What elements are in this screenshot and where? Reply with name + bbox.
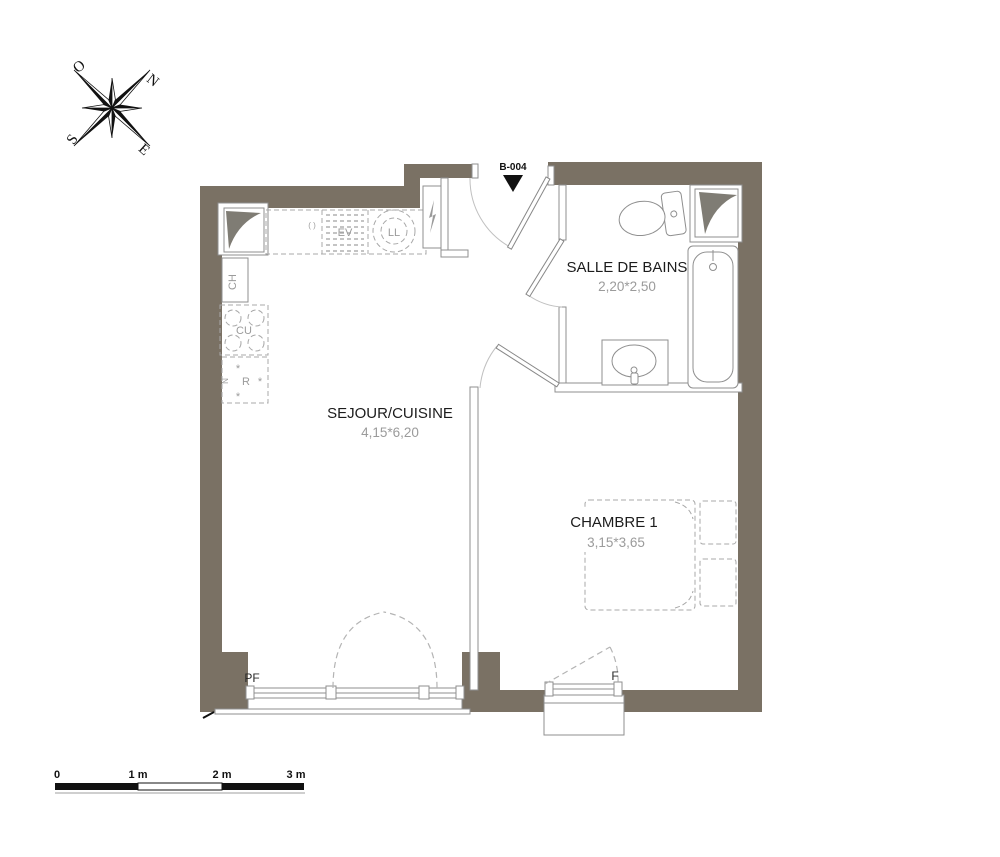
f-window-sill-box — [544, 695, 624, 735]
fridge-snowflake-icon: * — [236, 391, 241, 403]
pf-left-leaf-swing — [333, 612, 384, 688]
wall-segment — [200, 186, 222, 712]
bathroom-dimensions: 2,20*2,50 — [598, 279, 656, 294]
pf-window-sill — [248, 698, 462, 710]
entrance-door-swing-arc — [470, 178, 510, 247]
scale-tick-2m: 2 m — [213, 769, 232, 781]
washbasin-tap — [631, 367, 637, 373]
bathroom-name: SALLE DE BAINS — [567, 259, 688, 276]
compass-east-label: E — [135, 141, 153, 159]
pillow-outline — [700, 559, 736, 606]
bedroom-door-swing-arc — [480, 346, 497, 388]
burner-icon — [248, 335, 264, 351]
scale-bar: 0 1 m 2 m 3 m — [54, 769, 306, 794]
cooktop-label: CU — [236, 325, 252, 337]
wall-segment — [622, 690, 762, 712]
fridge-note-label: N — [221, 378, 230, 384]
floor-plan-page: O N S E — [0, 0, 1000, 857]
partition-living-bedroom — [470, 387, 478, 690]
burner-icon — [225, 335, 241, 351]
plan-corner-tick — [203, 712, 214, 718]
scale-tick-1m: 1 m — [129, 769, 148, 781]
windows — [215, 612, 624, 735]
bedroom-door-leaf — [496, 344, 559, 386]
partition-entry-return — [441, 250, 468, 257]
bed-corner-fold — [675, 502, 693, 519]
tap-mark: ( ) — [308, 221, 316, 230]
pf-window-cap — [246, 686, 254, 699]
pf-window-mullion — [419, 686, 429, 699]
pillow-outline — [700, 501, 736, 544]
burner-icon — [248, 310, 264, 326]
water-heater-label: CH — [227, 274, 239, 290]
pf-window-mullion — [326, 686, 336, 699]
bedroom-dimensions: 3,15*3,65 — [587, 535, 645, 550]
partition-entry-alcove — [441, 178, 448, 256]
fridge-label: R — [242, 376, 250, 388]
bedroom-window-label: F — [611, 669, 618, 683]
entrance-arrow-icon — [503, 175, 523, 192]
living-room-dimensions: 4,15*6,20 — [361, 425, 419, 440]
fridge-snowflake-icon: * — [236, 363, 241, 375]
f-window-cap — [614, 682, 622, 696]
compass-south-label: S — [64, 132, 82, 148]
pf-right-leaf-swing — [384, 612, 437, 688]
f-window-cap — [545, 682, 553, 696]
entrance-door-label: B-004 — [499, 162, 527, 173]
kitchen-fixtures: CH ( ) EV LL CU * * * R N — [218, 186, 441, 403]
pf-window-outer-sill — [215, 709, 470, 714]
bathroom-door-leaf — [526, 239, 564, 297]
living-room-name: SEJOUR/CUISINE — [327, 405, 453, 422]
toilet — [616, 191, 686, 243]
compass-star-icon — [74, 70, 150, 146]
compass-west-label: O — [70, 57, 89, 76]
fridge-snowflake-icon: * — [258, 376, 263, 388]
interior-partitions — [441, 164, 742, 690]
partition-bathroom-lower — [559, 307, 566, 388]
partition-bathroom-upper — [559, 185, 566, 240]
washing-machine-label: LL — [388, 227, 400, 239]
scale-tick-0: 0 — [54, 769, 60, 781]
wall-segment — [462, 690, 548, 712]
wall-segment — [404, 164, 478, 178]
electrical-panel — [423, 186, 441, 248]
f-window-swing-leaf — [545, 647, 610, 684]
pf-window-cap — [456, 686, 464, 699]
wall-segment — [548, 162, 762, 185]
compass-rose: O N S E — [64, 57, 162, 159]
toilet-flush-button — [670, 211, 677, 218]
washbasin-tap-body — [631, 373, 638, 384]
room-labels: SEJOUR/CUISINE 4,15*6,20 SALLE DE BAINS … — [327, 259, 687, 552]
bathtub-drain — [710, 264, 717, 271]
toilet-bowl — [617, 198, 667, 238]
scale-segment-black — [222, 783, 304, 790]
bedroom-name: CHAMBRE 1 — [570, 514, 658, 531]
doors — [470, 177, 564, 388]
bathroom-door-swing-arc — [528, 295, 562, 307]
bed-corner-fold — [675, 591, 693, 608]
door-jamb — [472, 164, 478, 178]
french-window-label: PF — [244, 671, 259, 685]
floor-plan-drawing: O N S E — [0, 0, 1000, 857]
bathtub-inner — [693, 252, 733, 382]
scale-segment-white — [138, 783, 222, 790]
door-jamb — [548, 166, 554, 185]
exterior-walls — [200, 162, 762, 712]
wall-segment — [738, 162, 762, 712]
scale-segment-black — [55, 783, 138, 790]
burner-icon — [225, 310, 241, 326]
scale-shadow-line — [55, 792, 305, 794]
sink-unit-label: EV — [338, 227, 353, 239]
scale-tick-3m: 3 m — [287, 769, 306, 781]
